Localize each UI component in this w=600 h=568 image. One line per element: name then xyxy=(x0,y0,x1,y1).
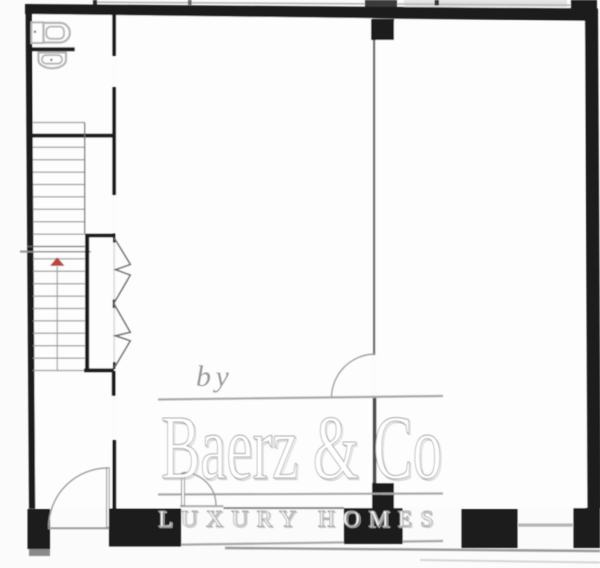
svg-text:LUXURY HOMES: LUXURY HOMES xyxy=(158,507,441,533)
svg-text:Baerz & Co: Baerz & Co xyxy=(161,397,442,498)
svg-text:by: by xyxy=(196,360,233,393)
